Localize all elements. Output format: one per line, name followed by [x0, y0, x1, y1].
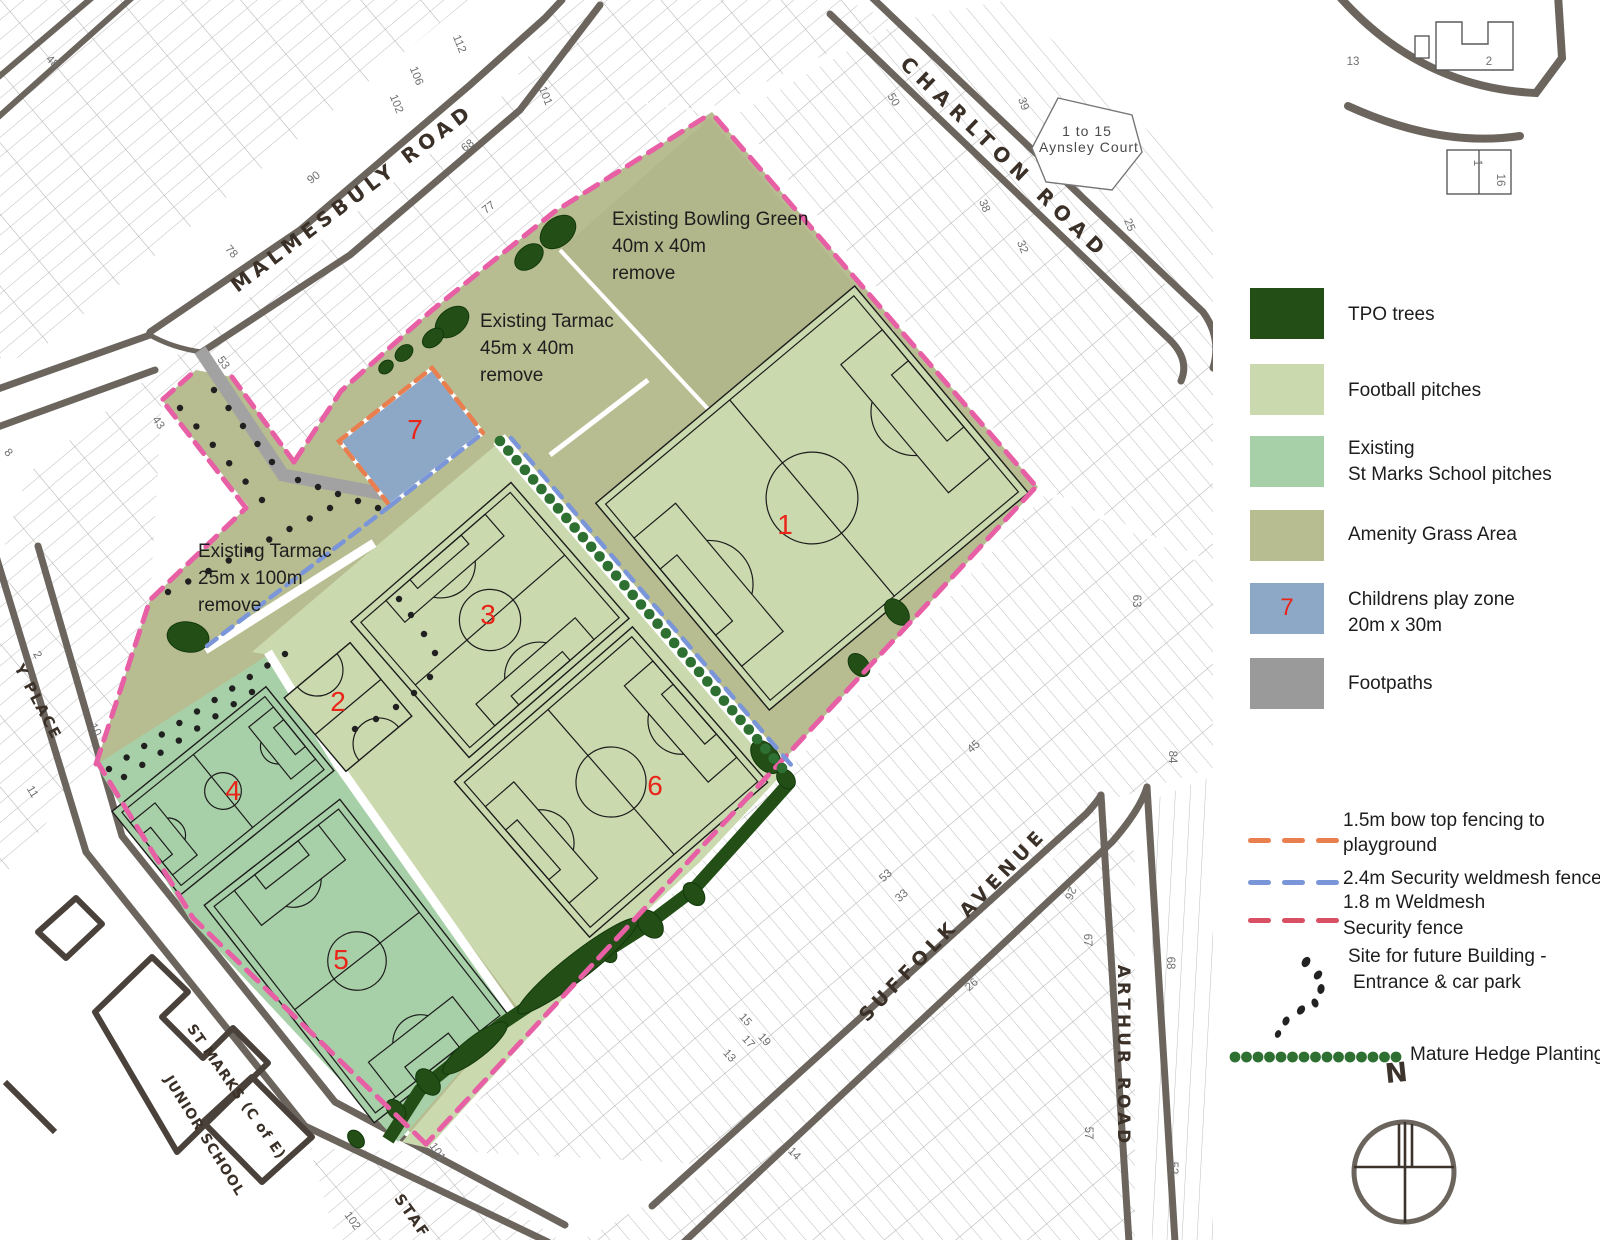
fence-label: 1.8 m Weldmesh — [1343, 890, 1485, 915]
legend-label: Childrens play zone — [1348, 587, 1515, 613]
legend-label: Amenity Grass Area — [1348, 522, 1517, 548]
tpo-trees-swatch — [1250, 288, 1324, 339]
fence-label: 2.4m Security weldmesh fence — [1343, 866, 1600, 891]
weldmesh-18-swatch — [1248, 918, 1338, 924]
fence-label: 1.5m bow top fencing to — [1343, 808, 1545, 833]
bow-top-fence-swatch — [1248, 838, 1338, 844]
legend-label: St Marks School pitches — [1348, 462, 1552, 488]
hedge-label: Mature Hedge Planting — [1410, 1042, 1600, 1067]
future-building-label: Site for future Building - — [1348, 944, 1547, 969]
legend-label: 20m x 30m — [1348, 613, 1442, 639]
legend-label: Football pitches — [1348, 378, 1481, 404]
future-building-dots — [1270, 948, 1340, 1040]
football-pitches-swatch — [1250, 364, 1324, 415]
hedge-swatch — [1226, 1046, 1406, 1068]
legend-panel: TPO trees Football pitches Existing St M… — [1213, 230, 1600, 1240]
st-marks-pitches-swatch — [1250, 436, 1324, 487]
future-building-label: Entrance & car park — [1353, 970, 1521, 995]
play-zone-number: 7 — [1250, 594, 1324, 622]
amenity-grass-swatch — [1250, 510, 1324, 561]
fence-label: Security fence — [1343, 916, 1463, 941]
footpaths-swatch — [1250, 658, 1324, 709]
north-label: N — [1383, 1057, 1409, 1090]
weldmesh-24-swatch — [1248, 880, 1338, 886]
legend-label: Footpaths — [1348, 671, 1433, 697]
compass-icon — [1323, 1095, 1493, 1240]
fence-label: playground — [1343, 833, 1437, 858]
legend-label: Existing — [1348, 436, 1415, 462]
childrens-play-zone-swatch: 7 — [1250, 583, 1324, 634]
legend-label: TPO trees — [1348, 302, 1435, 328]
site-plan-page: MALMESBULY ROADCHARLTON ROADSUFFOLK AVEN… — [0, 0, 1600, 1240]
